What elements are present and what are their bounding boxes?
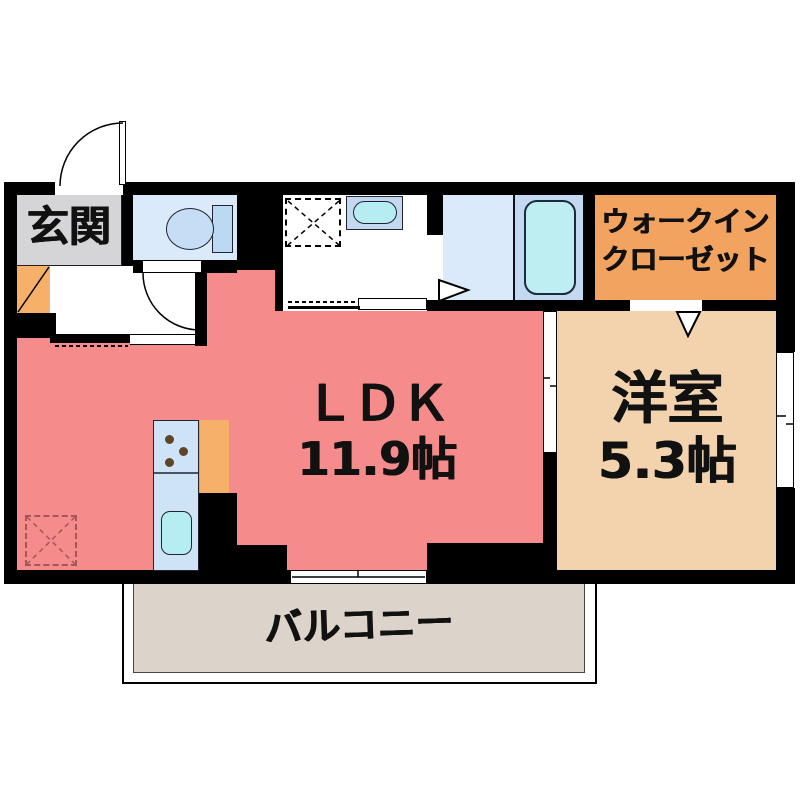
wall-kitchen-vertical [199, 493, 237, 572]
kitchen-sink [161, 511, 192, 555]
youshitsu-size-label: 5.3帖 [560, 436, 775, 486]
window-youshitsu-right [776, 352, 794, 488]
wall-toilet-washroom [237, 194, 283, 270]
wic-label-line2: クローゼット [595, 246, 776, 274]
wic-label-line1: ウォークイン [595, 208, 776, 236]
wall-center-horizontal [427, 300, 630, 311]
wall-washroom-bathroom-upper [427, 194, 443, 235]
bathroom-door-strip [427, 235, 443, 300]
wall-genkan-toilet [122, 194, 133, 266]
wall-top [123, 182, 795, 195]
wall-wic-bottom-right [702, 300, 777, 311]
wall-ldk-youshitsu-lower [543, 453, 557, 570]
vanity-sink [353, 201, 397, 224]
window-ldk-balcony [290, 570, 427, 584]
wall-washroom-left-lower [275, 270, 283, 311]
youshitsu-name-label: 洋室 [560, 372, 775, 428]
floor-hatch [25, 515, 77, 566]
stove-burner-2 [179, 447, 188, 456]
ldk-size-label: 11.9帖 [240, 436, 515, 482]
shoe-cabinet [16, 266, 50, 313]
wall-kitchen-horizontal [237, 545, 287, 572]
wall-bottom-left [4, 570, 290, 584]
washroom-door-leaf [358, 298, 427, 310]
toilet-door-leaf [142, 260, 202, 273]
ldk-name-label: ＬＤＫ [240, 380, 515, 428]
hallway [50, 266, 195, 338]
toilet-bowl [166, 208, 214, 250]
entrance-opening [55, 182, 123, 195]
wic-door-opening [630, 300, 702, 311]
hall-threshold [130, 334, 195, 345]
stove-burner-1 [165, 435, 174, 444]
entrance-door-leaf [119, 121, 126, 185]
toilet-tank [212, 205, 233, 253]
wall-bottom-right [543, 570, 795, 584]
stove-burner-3 [165, 458, 174, 467]
room-bathroom [437, 194, 513, 300]
entrance-door-arc [60, 123, 123, 186]
sliding-door-ldk-youshitsu [543, 311, 557, 453]
genkan-label: 玄関 [16, 206, 122, 248]
kitchen-counter-orange [200, 420, 229, 493]
floor-plan: 玄関 ＬＤＫ 11.9帖 洋室 5.3帖 ウォークイン クローゼット バルコニー [0, 0, 800, 800]
wall-right-upper [776, 182, 795, 352]
wall-bottom-center-chunk [427, 543, 557, 584]
washing-machine-space [285, 198, 341, 247]
bathtub [524, 200, 576, 295]
wall-hall-ldk [195, 266, 207, 346]
wall-bathroom-wic [583, 194, 595, 300]
wall-hall-bar [50, 334, 130, 343]
